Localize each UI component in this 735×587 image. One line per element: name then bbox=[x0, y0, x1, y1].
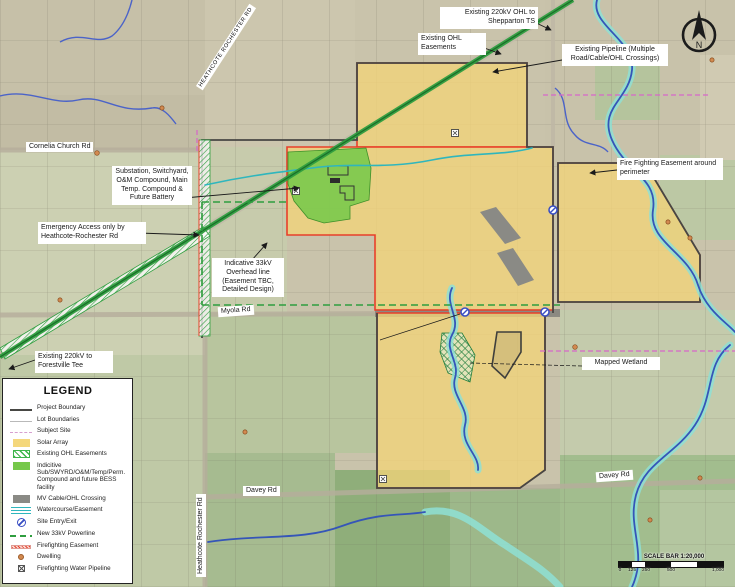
legend-item: Existing OHL Easements bbox=[8, 450, 128, 458]
annotation-pipeline: Existing Pipeline (Multiple Road/Cable/O… bbox=[562, 44, 668, 66]
legend-item: Firefighting Water Pipeline bbox=[8, 565, 128, 573]
annotation-emergency-access: Emergency Access only by Heathcote-Roche… bbox=[38, 222, 146, 244]
legend-item-label: Lot Boundaries bbox=[34, 416, 79, 423]
legend-item-label: Subject Site bbox=[34, 427, 71, 434]
scale-bar: SCALE BAR 1:20,000 0 125 250 500 1,000 bbox=[618, 554, 730, 575]
annotation-ohl-easements: Existing OHL Easements bbox=[418, 33, 486, 55]
legend-item-label: Firefighting Easement bbox=[34, 542, 98, 549]
legend: LEGEND Project Boundary Lot Boundaries S… bbox=[2, 378, 133, 584]
scale-tick: 250 bbox=[642, 568, 650, 573]
project-boundary-swatch bbox=[10, 409, 32, 411]
legend-item: Indicitive Sub/SWYRD/O&M/Temp/Perm. Comp… bbox=[8, 462, 128, 492]
existing-ohl-easements-swatch bbox=[13, 450, 30, 458]
watercourse-swatch bbox=[11, 507, 31, 514]
annotation-shepparton: Existing 220kV OHL to Shepparton TS bbox=[440, 7, 538, 29]
north-label: N bbox=[696, 40, 703, 50]
scale-tick: 125 bbox=[628, 568, 636, 573]
firefighting-easement-swatch bbox=[11, 545, 31, 549]
scale-bar-label: SCALE BAR 1:20,000 bbox=[618, 554, 730, 560]
legend-item: MV Cable/OHL Crossing bbox=[8, 495, 128, 503]
scale-tick: 0 bbox=[619, 568, 622, 573]
legend-item: Subject Site bbox=[8, 427, 128, 435]
mv-cable-swatch bbox=[13, 495, 30, 503]
firefighting-water-pipeline-icon bbox=[18, 565, 25, 572]
legend-item: Firefighting Easement bbox=[8, 542, 128, 550]
site-entry-icon bbox=[17, 518, 26, 527]
legend-item: Watercourse/Easement bbox=[8, 506, 128, 514]
legend-item: Solar Array bbox=[8, 439, 128, 447]
north-arrow-icon: N bbox=[676, 8, 722, 58]
legend-item-label: Watercourse/Easement bbox=[34, 506, 103, 513]
road-label-davey-rd-west: Davey Rd bbox=[243, 486, 280, 496]
annotation-mapped-wetland: Mapped Wetland bbox=[582, 357, 660, 370]
legend-item-label: Solar Array bbox=[34, 439, 68, 446]
scale-bar-ticks: 0 125 250 500 1,000 bbox=[618, 568, 724, 575]
subject-site-swatch bbox=[10, 432, 32, 433]
legend-item-label: Firefighting Water Pipeline bbox=[34, 565, 111, 572]
legend-item-label: MV Cable/OHL Crossing bbox=[34, 495, 106, 502]
road-label-heathcote-rochester-rd-vertical: Heathcote Rochester Rd bbox=[196, 494, 206, 577]
legend-title: LEGEND bbox=[8, 385, 128, 397]
scale-tick: 1,000 bbox=[712, 568, 724, 573]
compound-swatch bbox=[13, 462, 30, 470]
legend-item: Dwelling bbox=[8, 553, 128, 561]
scale-tick: 500 bbox=[667, 568, 675, 573]
legend-item-label: Dwelling bbox=[34, 553, 61, 560]
legend-item-label: Site Entry/Exit bbox=[34, 518, 77, 525]
dwelling-icon bbox=[18, 554, 24, 560]
legend-item-label: Project Boundary bbox=[34, 404, 85, 411]
legend-item-label: Indicitive Sub/SWYRD/O&M/Temp/Perm. Comp… bbox=[34, 462, 128, 492]
map-canvas: Existing 220kV OHL to Shepparton TS Exis… bbox=[0, 0, 735, 587]
annotation-forestville: Existing 220kV to Forestville Tee bbox=[35, 351, 113, 373]
lot-boundaries-swatch bbox=[10, 421, 32, 422]
solar-array-areas bbox=[287, 63, 700, 488]
legend-item-label: Existing OHL Easements bbox=[34, 450, 107, 457]
new-33kv-powerline-swatch bbox=[10, 535, 32, 537]
annotation-substation: Substation, Switchyard, O&M Compound, Ma… bbox=[112, 166, 192, 205]
solar-array-swatch bbox=[13, 439, 30, 447]
legend-item-label: New 33kV Powerline bbox=[34, 530, 95, 537]
road-label-cornelia-church-rd: Cornelia Church Rd bbox=[26, 142, 93, 152]
scale-bar-graphic bbox=[618, 561, 724, 568]
legend-item: New 33kV Powerline bbox=[8, 530, 128, 538]
annotation-fire-easement: Fire Fighting Easement around perimeter bbox=[617, 158, 723, 180]
legend-item: Site Entry/Exit bbox=[8, 518, 128, 527]
annotation-indicative-33kv: Indicative 33kV Overhead line (Easement … bbox=[212, 258, 284, 297]
legend-item: Project Boundary bbox=[8, 404, 128, 412]
legend-item: Lot Boundaries bbox=[8, 416, 128, 424]
